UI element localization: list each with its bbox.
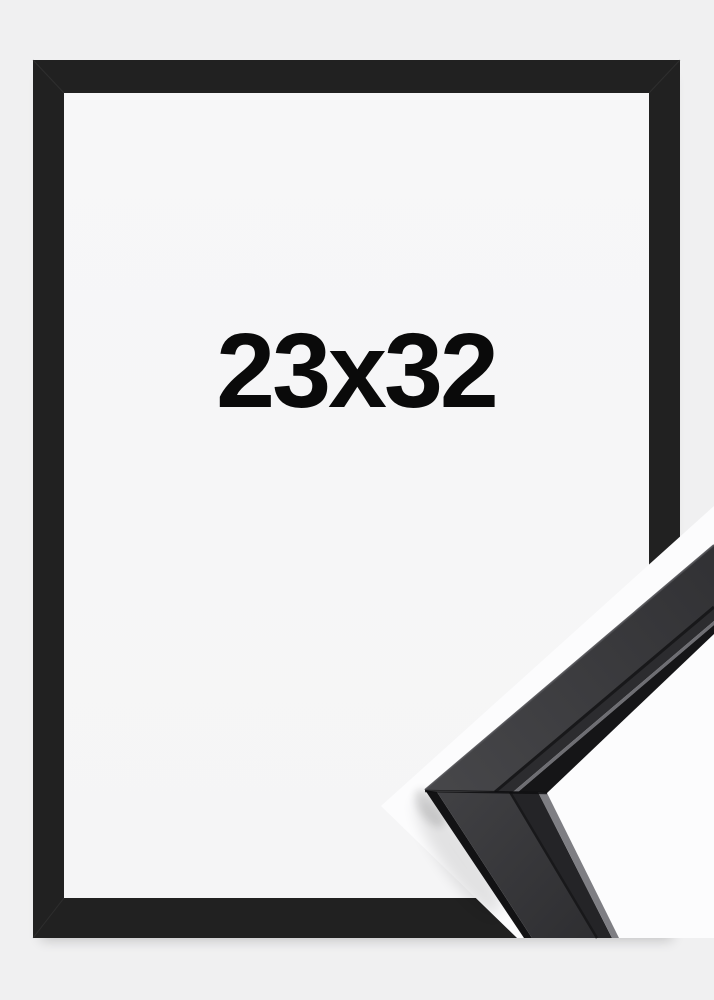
product-image: 23x32 [0,0,714,1000]
picture-frame [33,60,680,938]
size-label: 23x32 [216,311,496,432]
frame-opening [64,93,649,898]
